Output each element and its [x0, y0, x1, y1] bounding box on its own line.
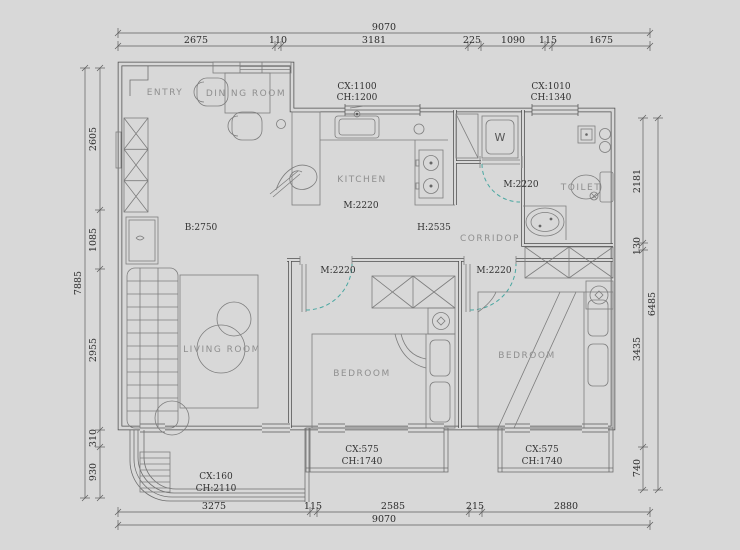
- dim-bottom-seg: 2880: [554, 501, 578, 512]
- dim-top-seg: 3181: [362, 35, 386, 46]
- window-size-label: CX:575: [525, 445, 559, 455]
- dim-top-seg: 1675: [589, 35, 613, 46]
- window-size-label: CH:1340: [531, 93, 572, 103]
- window-size-label: CH:1740: [522, 457, 563, 467]
- room-label-toilet: TOILET: [560, 183, 601, 193]
- floor-plan-canvas: 9070 2675 110 3181 225 1090 115 1675 327…: [0, 0, 740, 550]
- dim-right-seg: 130: [632, 237, 643, 255]
- dim-left-seg: 930: [88, 463, 99, 481]
- room-label-living: LIVING ROOM: [183, 345, 261, 355]
- room-label-dining: DINING ROOM: [206, 89, 286, 99]
- room-label-corridor: CORRIDOP: [460, 234, 520, 244]
- door-size-label: M:2220: [503, 180, 538, 190]
- window-size-label: CX:160: [199, 472, 233, 482]
- washer-label: W: [495, 131, 506, 144]
- dim-right-seg: 2181: [632, 169, 643, 193]
- dim-left-seg: 2955: [88, 338, 99, 362]
- dim-top-seg: 1090: [501, 35, 525, 46]
- window-size-label: CH:2110: [196, 484, 237, 494]
- door-size-label: M:2220: [320, 266, 355, 276]
- dim-left-seg: 2605: [88, 127, 99, 151]
- window-size-label: CX:575: [345, 445, 379, 455]
- beam-label: B:2750: [185, 223, 218, 233]
- height-label: H:2535: [417, 223, 451, 233]
- door-size-label: M:2220: [476, 266, 511, 276]
- floor-plan-drawing: 9070 2675 110 3181 225 1090 115 1675 327…: [0, 0, 740, 550]
- dim-left-total: 7885: [73, 271, 84, 295]
- room-label-entry: ENTRY: [147, 88, 184, 98]
- dim-right-seg: 3435: [632, 337, 643, 361]
- kitchen-height-label: M:2220: [343, 201, 378, 211]
- room-label-kitchen: KITCHEN: [337, 175, 387, 185]
- dim-bottom-seg: 2585: [381, 501, 405, 512]
- dim-top-seg: 225: [463, 35, 481, 46]
- dim-bottom-seg: 115: [304, 501, 322, 512]
- dim-right-seg: 740: [632, 459, 643, 477]
- dim-top-seg: 2675: [184, 35, 208, 46]
- window-size-label: CH:1200: [337, 93, 378, 103]
- window-size-label: CX:1010: [531, 82, 571, 92]
- dim-bottom-seg: 3275: [202, 501, 226, 512]
- window-size-label: CX:1100: [337, 82, 377, 92]
- dim-top-seg: 115: [539, 35, 557, 46]
- toilet-window: [532, 104, 578, 116]
- window-size-label: CH:1740: [342, 457, 383, 467]
- room-label-bedroom2: BEDROOM: [498, 351, 555, 361]
- dim-right-total: 6485: [647, 292, 658, 316]
- dim-bottom-total: 9070: [372, 514, 396, 525]
- dim-left-seg: 310: [88, 429, 99, 447]
- room-label-bedroom1: BEDROOM: [333, 369, 390, 379]
- dim-top-total: 9070: [372, 22, 396, 33]
- dim-top-seg: 110: [269, 35, 287, 46]
- dim-left-seg: 1085: [88, 228, 99, 252]
- dim-bottom-seg: 215: [466, 501, 484, 512]
